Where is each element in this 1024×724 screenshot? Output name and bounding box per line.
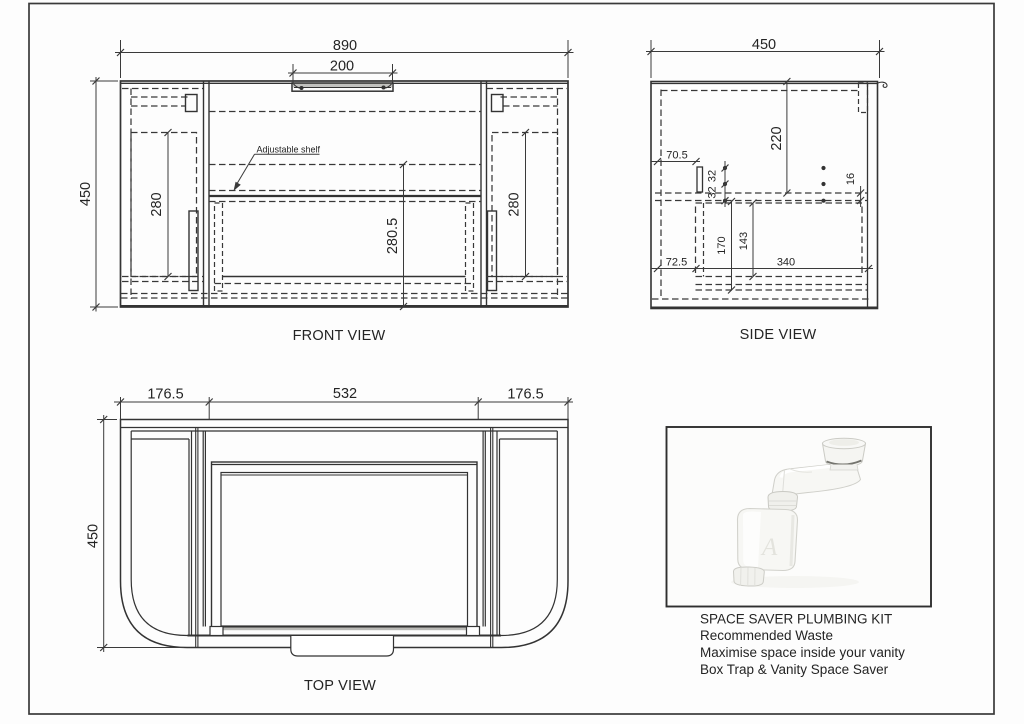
svg-text:176.5: 176.5 [147,387,183,403]
svg-text:220: 220 [769,126,785,150]
svg-text:890: 890 [333,38,357,54]
svg-text:16: 16 [845,173,857,185]
svg-text:280: 280 [149,192,165,216]
svg-text:280: 280 [507,192,523,216]
svg-text:450: 450 [78,182,94,206]
svg-text:SPACE SAVER PLUMBING KIT: SPACE SAVER PLUMBING KIT [700,612,892,627]
svg-text:143: 143 [738,232,750,250]
svg-text:FRONT VIEW: FRONT VIEW [293,328,386,344]
svg-text:170: 170 [716,236,728,254]
svg-text:Recommended Waste: Recommended Waste [700,628,833,643]
svg-text:A: A [760,534,778,561]
svg-text:32: 32 [707,186,719,198]
svg-text:176.5: 176.5 [507,387,543,403]
svg-text:TOP VIEW: TOP VIEW [304,678,376,694]
svg-text:340: 340 [777,257,795,269]
svg-text:Maximise space inside your van: Maximise space inside your vanity [700,645,905,660]
svg-text:SIDE VIEW: SIDE VIEW [740,327,817,343]
svg-text:32: 32 [707,170,719,182]
svg-text:280.5: 280.5 [385,218,401,254]
svg-text:70.5: 70.5 [666,150,687,162]
svg-text:532: 532 [333,386,357,402]
svg-text:450: 450 [86,524,102,548]
svg-text:Box Trap & Vanity Space Saver: Box Trap & Vanity Space Saver [700,662,889,677]
svg-text:450: 450 [752,37,776,53]
svg-text:Adjustable shelf: Adjustable shelf [257,145,321,155]
svg-text:200: 200 [330,59,354,75]
svg-text:72.5: 72.5 [666,257,687,269]
